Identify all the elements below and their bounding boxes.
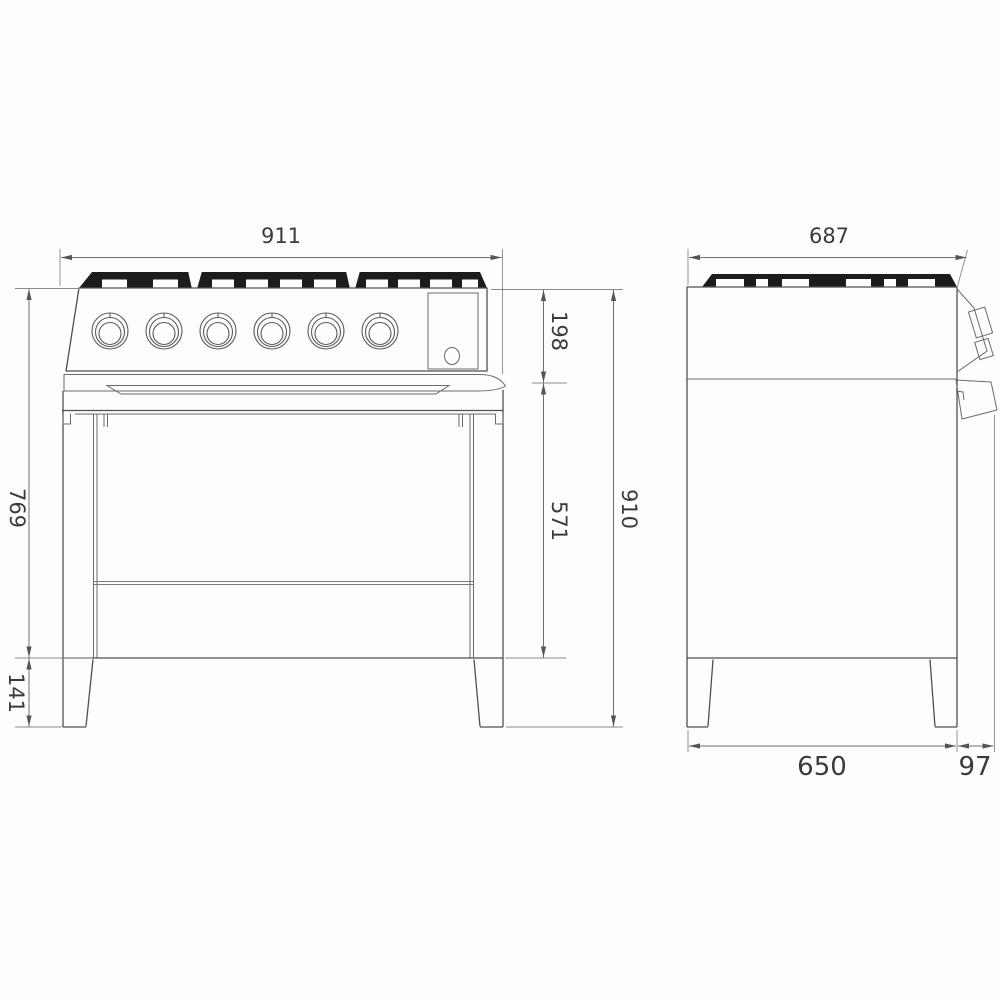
knob-icon xyxy=(362,313,398,349)
side-dimensions: 687 650 97 xyxy=(688,224,995,782)
knob-icon xyxy=(200,313,236,349)
side-grate-icon xyxy=(702,274,957,288)
dim-front-width: 911 xyxy=(261,224,301,248)
dim-side-width: 687 xyxy=(809,224,849,248)
front-dimensions: 911 769 141 198 571 910 xyxy=(4,224,641,727)
side-body xyxy=(687,287,957,658)
control-band xyxy=(66,288,487,371)
dim-side-base-depth: 650 xyxy=(797,752,847,782)
dim-front-leg-height: 141 xyxy=(4,673,28,713)
control-panel xyxy=(428,293,478,369)
side-knob-panel xyxy=(957,289,993,372)
dim-front-body-height: 769 xyxy=(5,488,29,528)
side-legs xyxy=(687,658,957,727)
oven-handle-front xyxy=(64,375,506,395)
dim-front-oven-height: 571 xyxy=(547,501,571,541)
knob-icon xyxy=(92,313,128,349)
front-view xyxy=(62,271,506,727)
knob-icon xyxy=(146,313,182,349)
range-cooker-drawing: 911 769 141 198 571 910 687 650 xyxy=(0,0,1000,1000)
front-legs xyxy=(63,660,503,728)
control-knobs xyxy=(92,313,398,349)
drawer-line xyxy=(94,582,474,585)
side-view xyxy=(687,274,997,727)
oven-front xyxy=(62,390,503,727)
dimension-drawing-canvas: 911 769 141 198 571 910 687 650 xyxy=(0,0,1000,1000)
dim-side-handle-depth: 97 xyxy=(958,752,991,782)
side-knob-icon xyxy=(968,307,992,338)
ignition-button-icon xyxy=(445,348,460,365)
knob-icon xyxy=(308,313,344,349)
dim-front-cooktop-height: 198 xyxy=(547,311,571,351)
dim-front-total-height: 910 xyxy=(617,489,641,529)
pan-support-grate-icon xyxy=(79,271,487,289)
oven-handle-side xyxy=(956,380,997,419)
knob-icon xyxy=(254,313,290,349)
